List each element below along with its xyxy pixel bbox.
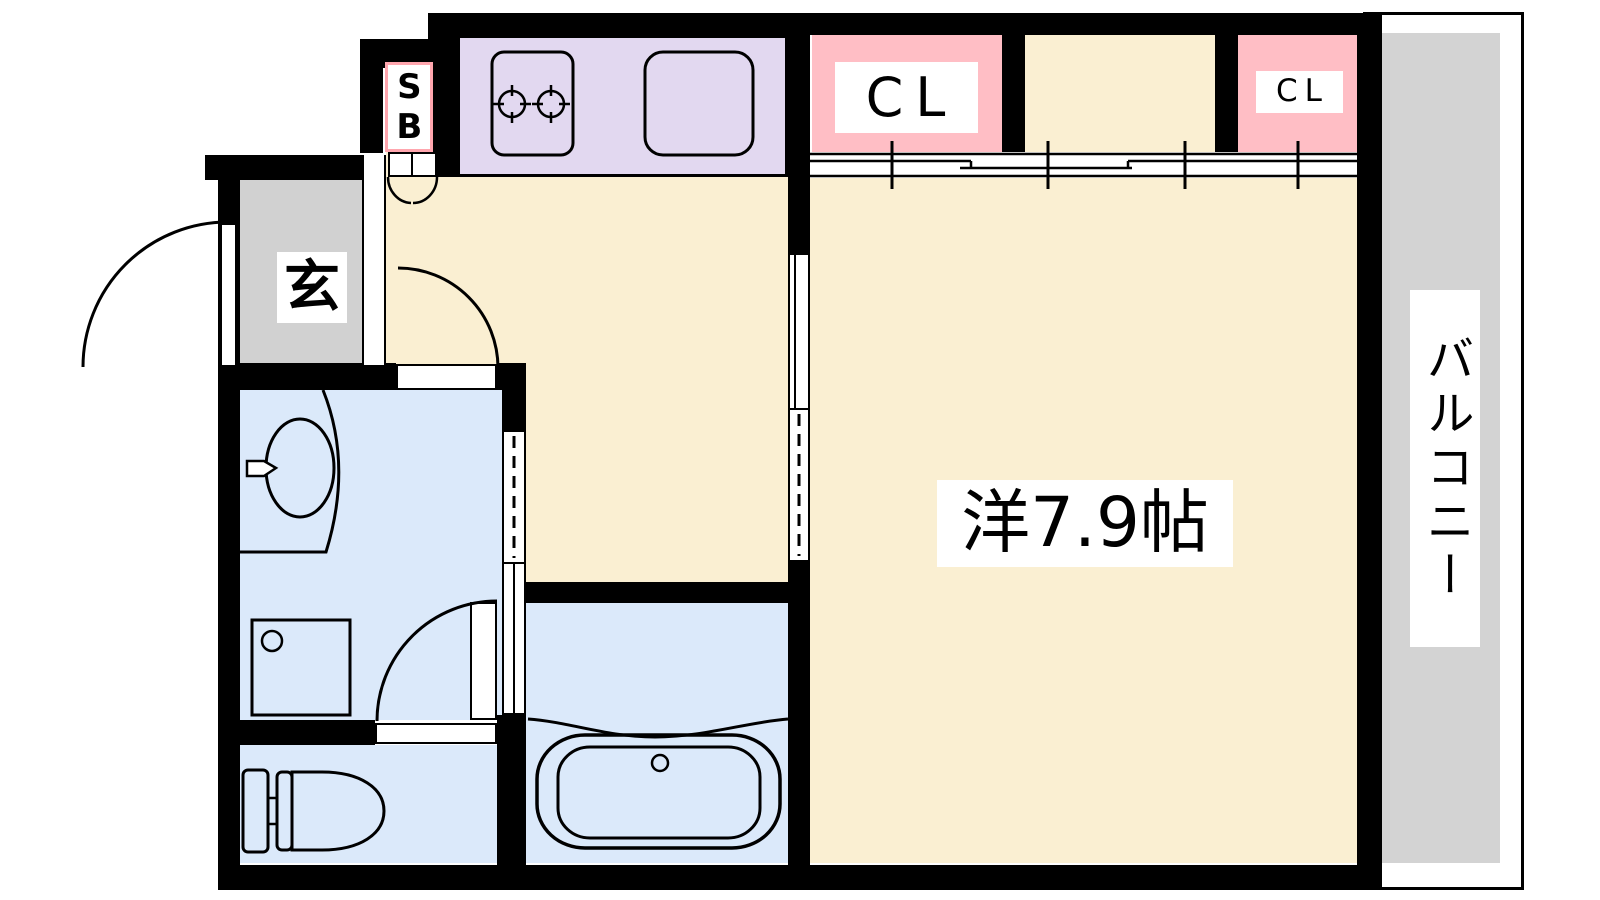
floorplan: SB 玄 CL CL 洋7.9帖 バルコニー xyxy=(0,0,1600,900)
balcony-label: バルコニー xyxy=(1410,290,1480,647)
kitchen-sink xyxy=(645,52,753,155)
western-room-label: 洋7.9帖 xyxy=(937,480,1233,567)
shoe-box-label: SB xyxy=(385,62,433,152)
closet-small-label: CL xyxy=(1256,71,1343,113)
stove-burner-ticks xyxy=(493,85,570,123)
bathtub-drain xyxy=(652,755,668,771)
entrance-label: 玄 xyxy=(277,252,347,323)
toilet-tank xyxy=(243,770,268,852)
bathtub-inner xyxy=(558,747,760,838)
washer-drain xyxy=(262,631,282,651)
closet-small-text: CL xyxy=(1276,76,1329,108)
washbasin-faucet xyxy=(247,461,276,476)
closet-large-text: CL xyxy=(866,70,958,125)
toilet-bowl xyxy=(292,772,384,850)
entrance-door-arc xyxy=(83,222,228,367)
balcony-text: バルコニー xyxy=(1421,334,1470,604)
fixture-symbols xyxy=(0,0,1600,900)
shoebox-door-arcs xyxy=(388,177,437,203)
entrance-text: 玄 xyxy=(284,259,340,316)
toilet-seat-back xyxy=(277,772,292,850)
closet-track-ticks xyxy=(892,141,1298,189)
western-room-text: 洋7.9帖 xyxy=(961,488,1209,558)
washer-pan xyxy=(252,620,350,715)
closet-large-label: CL xyxy=(835,62,978,133)
shoe-box-text: SB xyxy=(392,67,427,147)
washroom-door-arc xyxy=(398,268,498,368)
toilet-door-arc xyxy=(377,601,497,721)
